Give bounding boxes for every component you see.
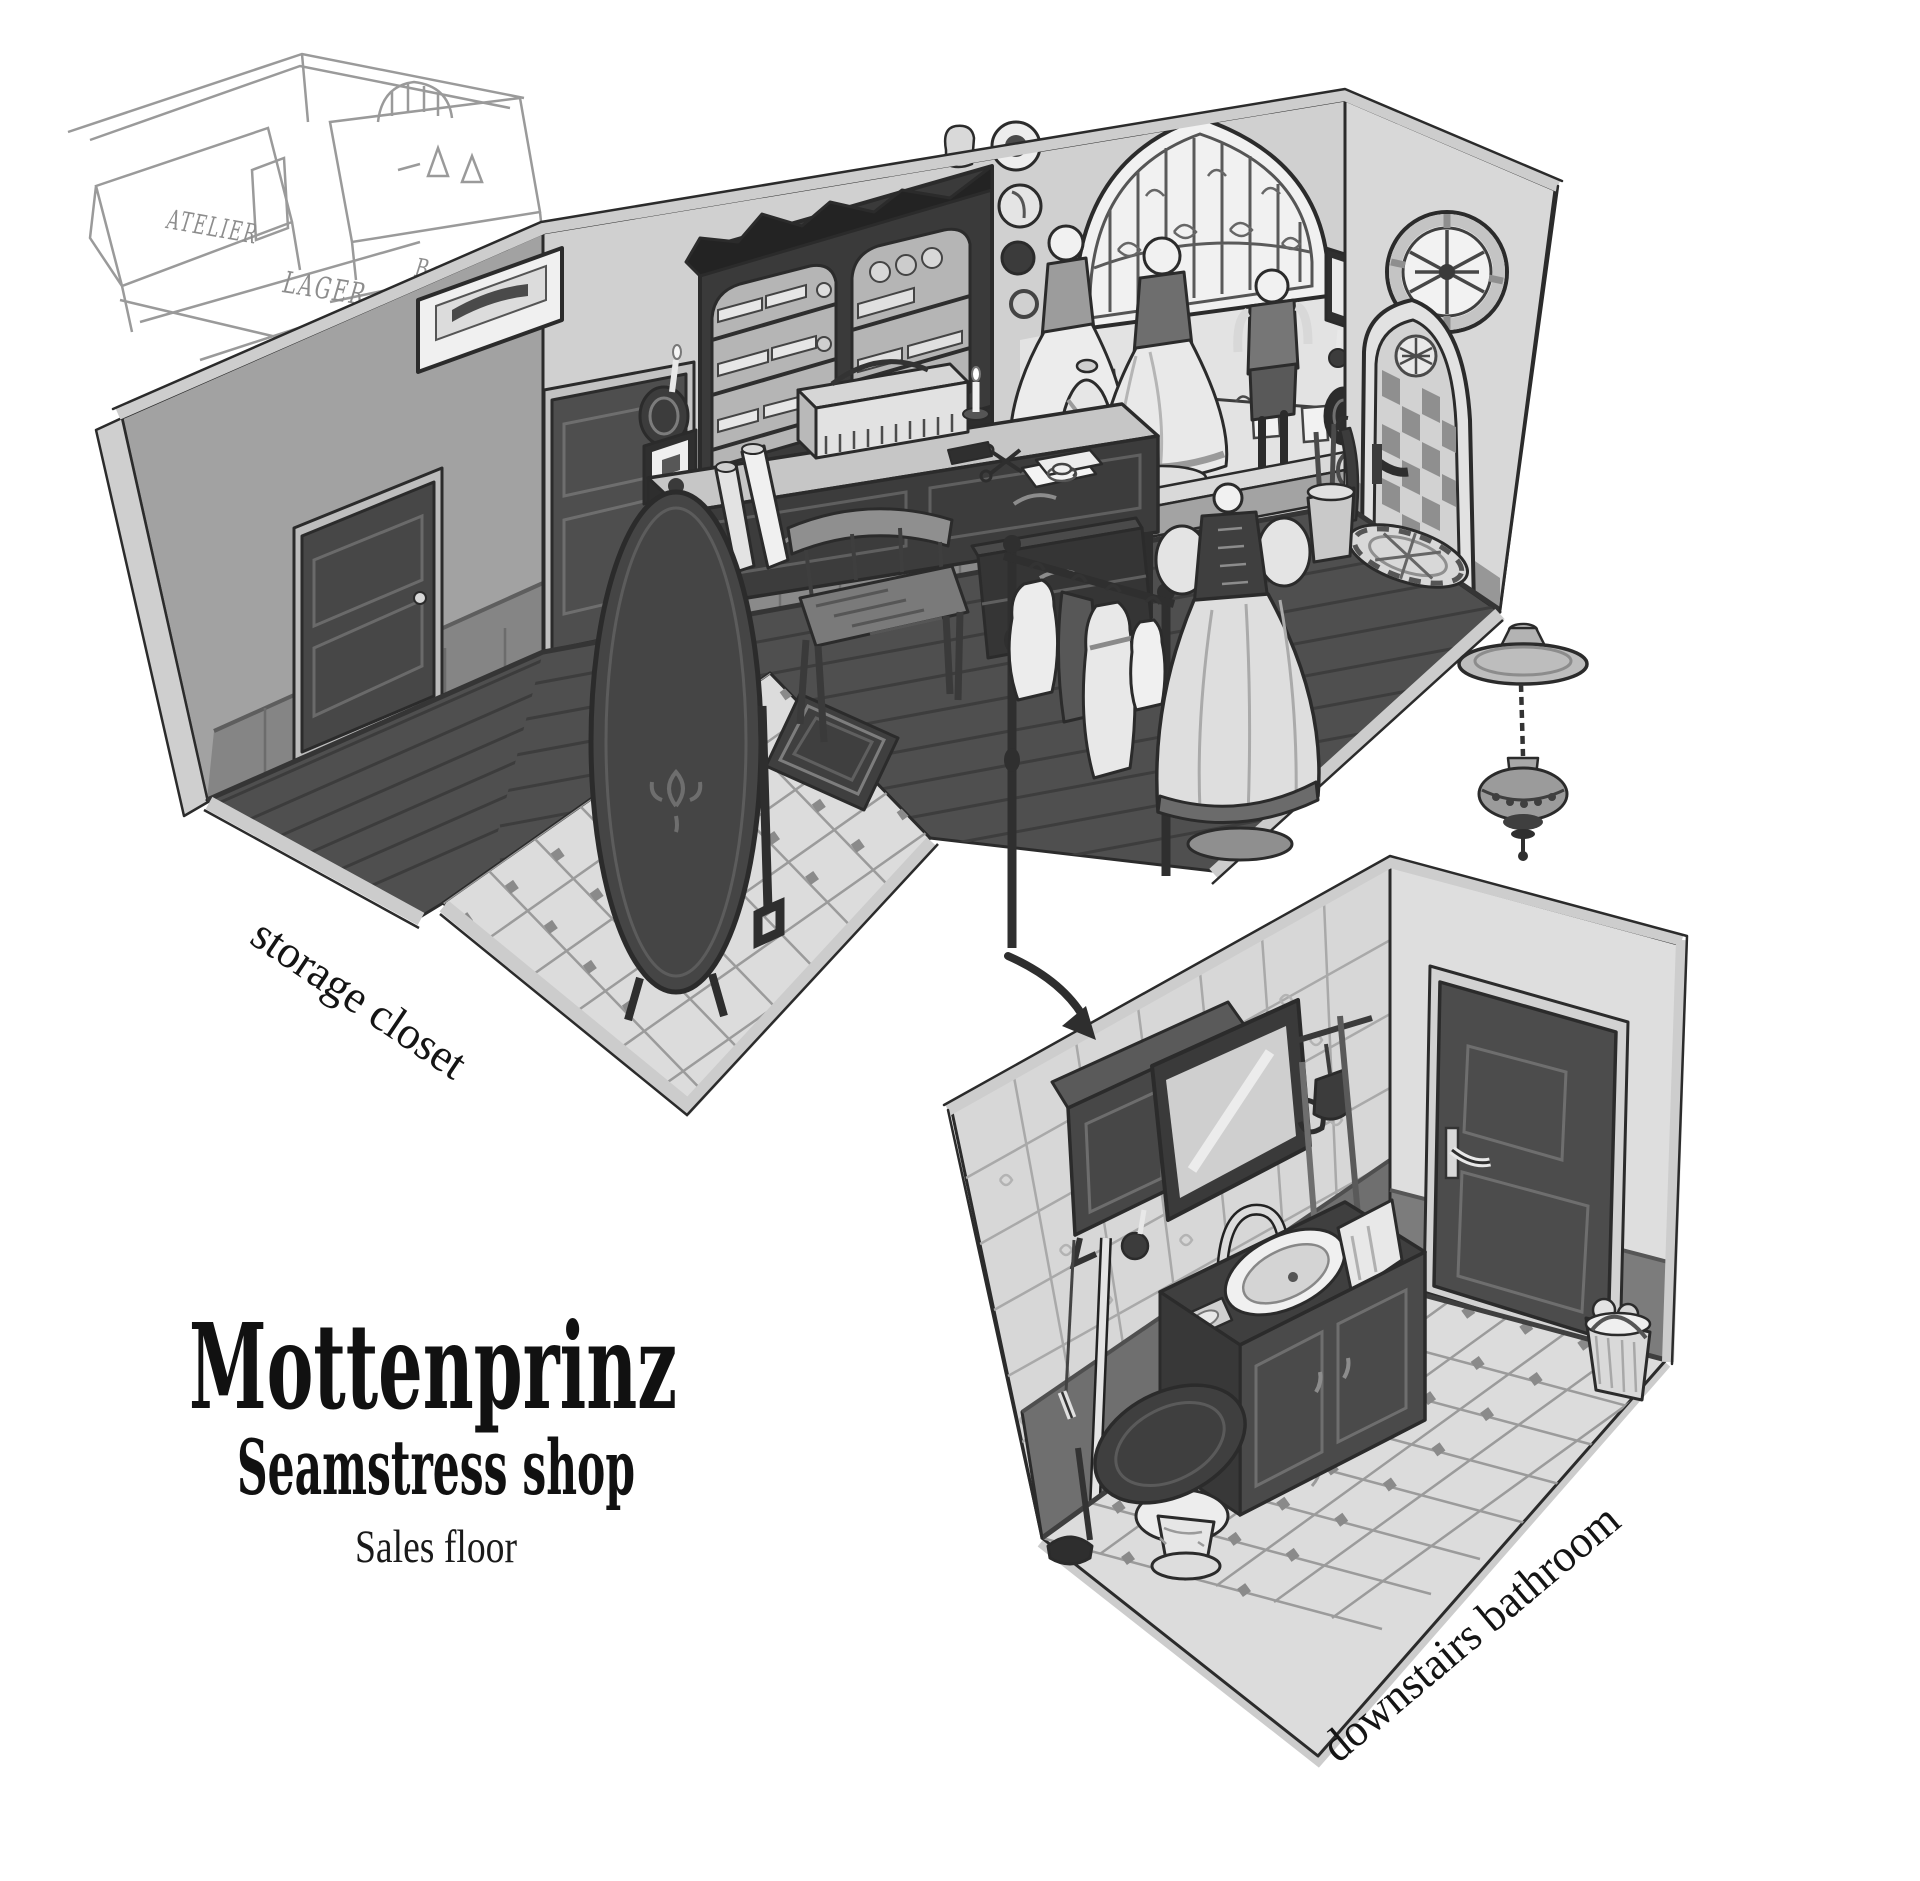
hanging-lamp [1459,624,1587,861]
sconce-flame [673,345,681,359]
sketch-roof-lines [68,54,524,140]
storage-closet-label: storage closet [242,908,476,1089]
bath-sconce-plate [1122,1233,1148,1259]
fabric-roll-cap [742,444,764,454]
mannequin-head [1256,270,1288,302]
plunger-cup [1048,1537,1092,1564]
mannequin-vest [1248,300,1298,374]
candle-flame [972,367,980,381]
toilet-base [1152,1553,1220,1579]
sconce-candle [672,360,676,392]
sketch-figures [398,148,482,182]
round-window-hub [1439,264,1455,280]
mirror-oval [591,492,761,992]
lamp-lower-1 [1503,814,1543,830]
lamp-chain [1521,684,1523,756]
shop-type-title: Seamstress shop [237,1423,635,1512]
dress-form [1156,484,1319,860]
plate-2 [999,185,1041,227]
stand-bucket-rim [1308,484,1354,500]
bathroom-door [1424,966,1628,1352]
title-block: Mottenprinz Seamstress shop Sales floor [189,1297,677,1573]
umbrella-stand [1308,418,1358,562]
concept-art-canvas: ATELIER LAGER Bath [0,0,1920,1881]
dress-bodice [1194,512,1268,606]
lamp-finial-tip [1518,851,1528,861]
garment-shirt-2 [1131,620,1165,710]
fabric-roll-cap [716,462,736,472]
bust-neck-cap [1077,360,1097,372]
sketch-label-atelier: ATELIER [163,204,261,251]
mannequin-head [1049,226,1083,260]
shop-name-title: Mottenprinz [189,1297,677,1436]
arrow-curve [1008,956,1084,1018]
closet-door-knob [414,592,426,604]
mannequin-head [1144,238,1180,274]
entry-door-lock-plate [1372,444,1382,484]
lamp-lower-2 [1511,829,1535,839]
floor-title: Sales floor [355,1521,517,1573]
dress-form-head [1214,484,1242,512]
garment-shirt-1 [1009,580,1057,700]
dress-form-base [1188,828,1292,860]
garment-dress [1083,602,1135,778]
lamp-shade [1459,644,1587,684]
cup [1053,464,1071,474]
mannequin-breeches [1250,364,1296,420]
plate-3 [1002,242,1034,274]
connection-arrow [1008,956,1096,1040]
